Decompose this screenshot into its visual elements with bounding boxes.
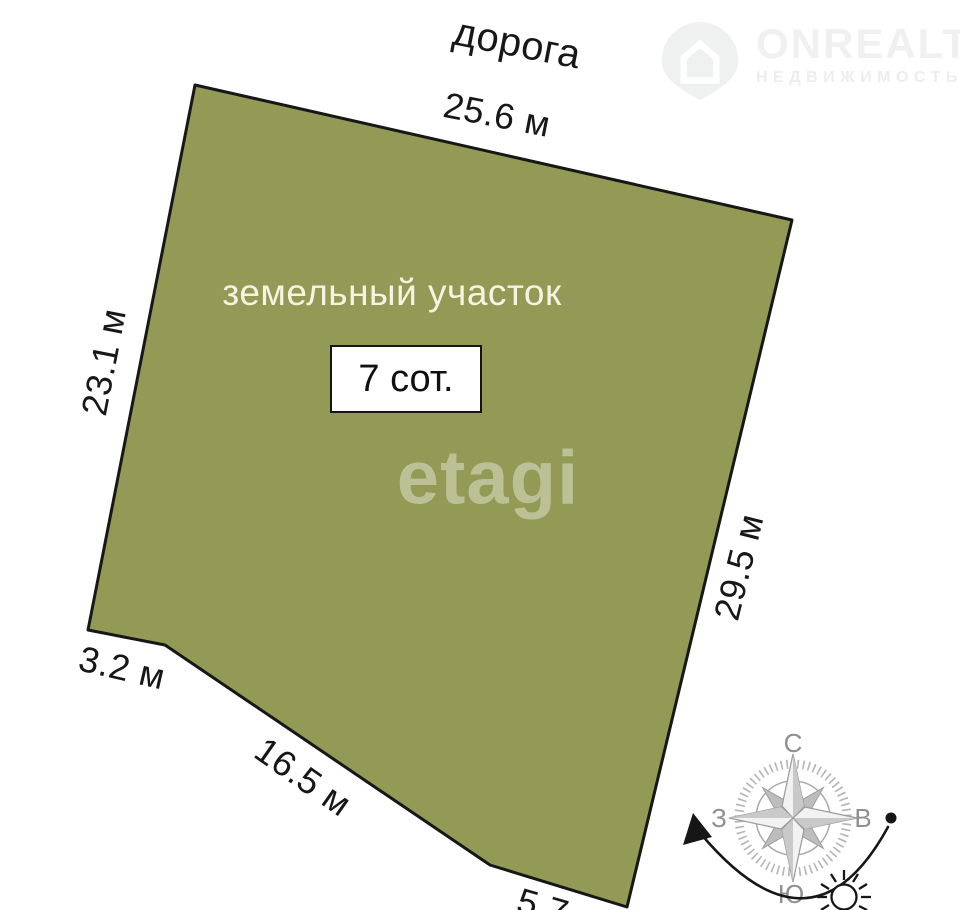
compass-rose: С Ю З В <box>711 728 872 909</box>
onrealt-pin-icon <box>652 22 748 100</box>
area-badge: 7 сот. <box>330 345 482 413</box>
onrealt-logo: ONREALT НЕДВИЖИМОСТЬ <box>652 22 960 100</box>
compass-label-east: В <box>854 803 871 833</box>
area-value: 7 сот. <box>358 358 453 401</box>
etagi-watermark: etagi <box>397 435 579 522</box>
arrow-start-dot <box>886 813 897 824</box>
compass-label-north: С <box>784 728 803 758</box>
brand-tagline: НЕДВИЖИМОСТЬ <box>756 69 960 87</box>
onrealt-wordmark: ONREALT НЕДВИЖИМОСТЬ <box>756 22 960 87</box>
compass-label-west: З <box>711 803 727 833</box>
brand-name: ONREALT <box>756 22 960 66</box>
sun-icon <box>817 870 871 910</box>
compass-label-south: Ю <box>778 879 804 909</box>
plot-diagram: С Ю З В <box>0 0 960 910</box>
parcel-title: земельный участок <box>222 272 561 314</box>
compass-cardinal-points <box>729 754 857 882</box>
